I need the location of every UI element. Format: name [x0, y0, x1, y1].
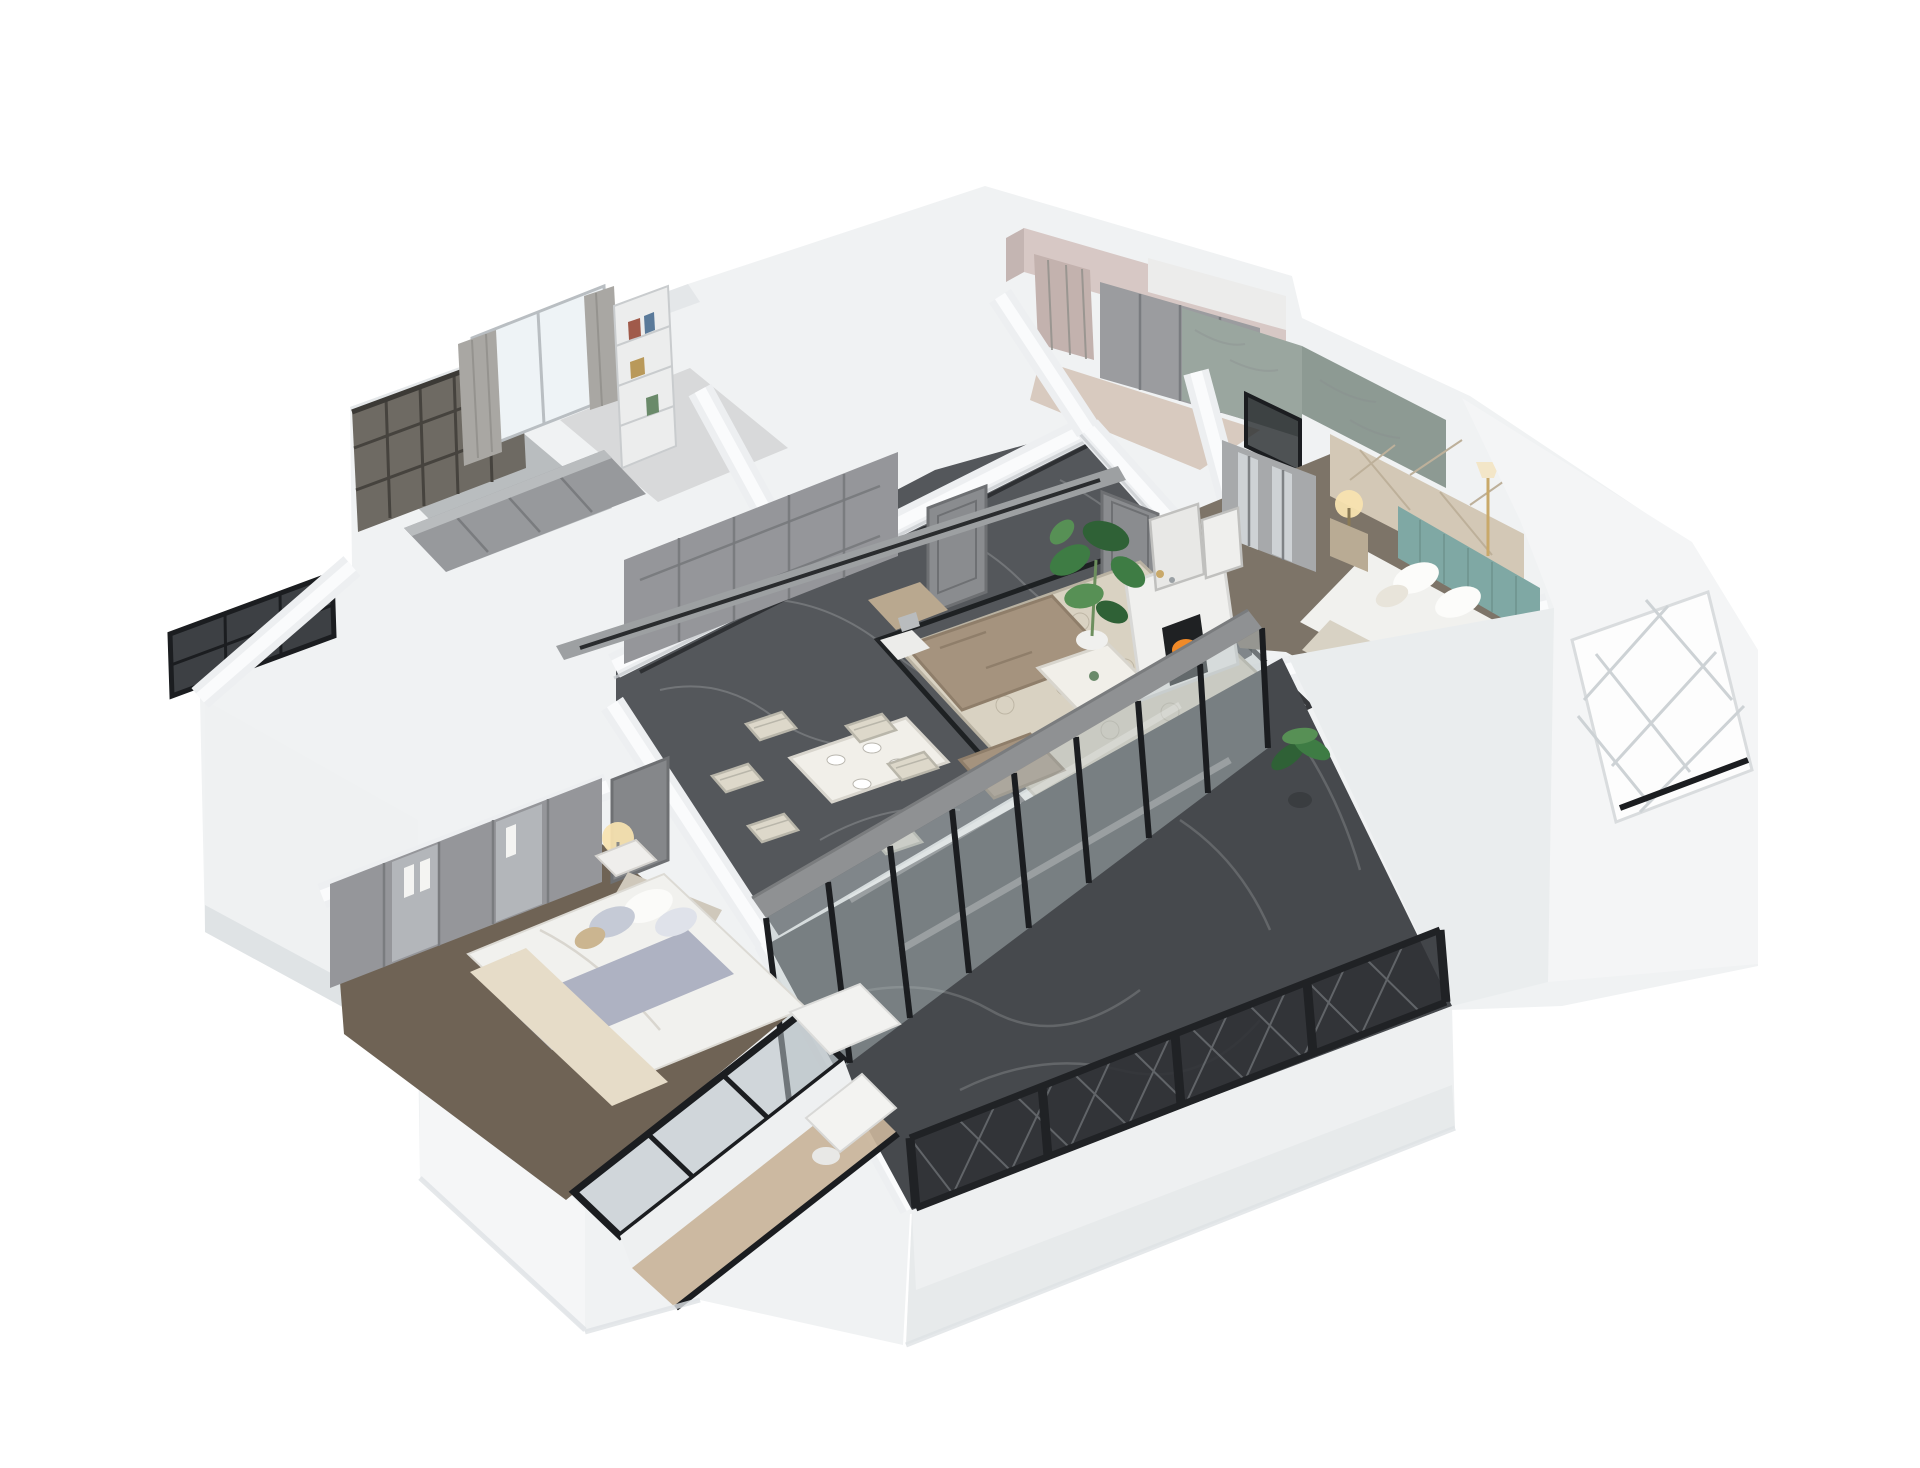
pot	[1288, 792, 1312, 808]
floorplan-render	[0, 0, 1920, 1468]
vase	[1089, 671, 1099, 681]
post	[1440, 930, 1446, 1002]
glass-door	[392, 844, 438, 962]
hanging-clothes	[420, 858, 430, 892]
post	[1307, 982, 1313, 1053]
mantel-decor	[1156, 570, 1164, 578]
art-frame	[1202, 508, 1242, 578]
stool	[812, 1147, 840, 1165]
place-setting	[853, 779, 871, 789]
hanging-clothes	[404, 864, 414, 898]
post	[910, 1138, 916, 1208]
hanging-clothes	[506, 824, 516, 858]
place-setting	[827, 755, 845, 765]
post	[1042, 1086, 1048, 1156]
post	[1175, 1034, 1181, 1105]
place-setting	[863, 743, 881, 753]
mantel-decor	[1169, 577, 1175, 583]
apartment-svg	[0, 0, 1920, 1468]
glass-door	[496, 804, 542, 922]
hall-door-1	[928, 486, 986, 614]
bookshelf	[614, 286, 676, 468]
